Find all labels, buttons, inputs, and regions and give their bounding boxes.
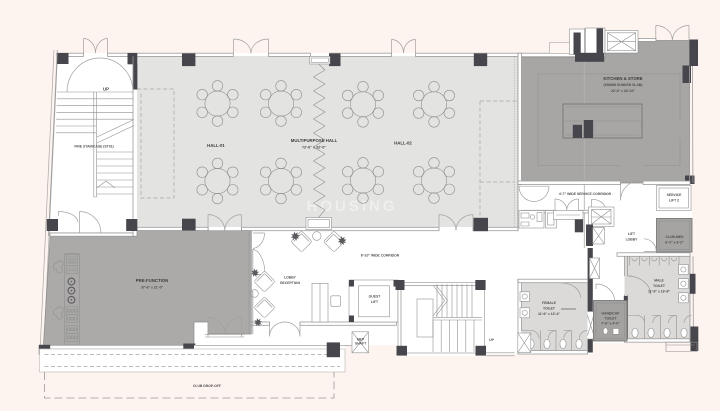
svg-text:22'-4" x 22'-10": 22'-4" x 22'-10" xyxy=(611,89,635,93)
svg-text:GUEST: GUEST xyxy=(369,295,382,299)
svg-text:LOBBY: LOBBY xyxy=(284,276,297,280)
svg-text:TOILET: TOILET xyxy=(543,307,556,311)
svg-text:RECEPTION: RECEPTION xyxy=(280,281,300,285)
svg-text:SHAFT: SHAFT xyxy=(355,342,367,346)
svg-text:HOUSING: HOUSING xyxy=(306,198,397,215)
svg-text:FIRE STAIRCASE (ST01): FIRE STAIRCASE (ST01) xyxy=(74,145,113,149)
svg-text:KITCHEN & STORE: KITCHEN & STORE xyxy=(603,76,642,81)
svg-text:4'-7" WIDE SERVICE CORRIDOR: 4'-7" WIDE SERVICE CORRIDOR xyxy=(559,192,612,196)
svg-text:(150MM SUNKEN SLAB): (150MM SUNKEN SLAB) xyxy=(604,83,643,87)
svg-text:7'-6" x 4'-0": 7'-6" x 4'-0" xyxy=(601,322,620,326)
svg-text:11'-9" x 15'-8": 11'-9" x 15'-8" xyxy=(648,290,670,294)
svg-text:FEMALE: FEMALE xyxy=(542,301,557,305)
svg-text:MULTIPURPOSE HALL: MULTIPURPOSE HALL xyxy=(291,138,338,143)
svg-text:LOBBY: LOBBY xyxy=(626,238,639,242)
svg-text:CLUB DROP-OFF: CLUB DROP-OFF xyxy=(193,384,221,388)
svg-text:UP: UP xyxy=(103,87,109,92)
svg-text:PRE-FUNCTION: PRE-FUNCTION xyxy=(136,278,168,283)
svg-text:TOILET: TOILET xyxy=(653,284,666,288)
svg-text:LIFT: LIFT xyxy=(371,300,379,304)
svg-text:MALE: MALE xyxy=(654,279,664,283)
svg-text:LIFT: LIFT xyxy=(628,232,636,236)
svg-text:6'-3" x 6'-2": 6'-3" x 6'-2" xyxy=(665,241,684,245)
svg-text:HALL-02: HALL-02 xyxy=(394,141,412,146)
svg-text:SERVICE: SERVICE xyxy=(667,193,683,197)
svg-text:LIFT 2: LIFT 2 xyxy=(669,199,679,203)
svg-text:UP: UP xyxy=(489,338,494,342)
svg-text:HALL-01: HALL-01 xyxy=(207,143,225,148)
svg-text:37'-6" x 21'-0": 37'-6" x 21'-0" xyxy=(141,286,164,290)
svg-text:8'-10" WIDE CORRIDOR: 8'-10" WIDE CORRIDOR xyxy=(361,254,400,258)
svg-text:11'-9" x 12'-4": 11'-9" x 12'-4" xyxy=(538,312,560,316)
svg-text:HANDICAP: HANDICAP xyxy=(602,312,621,316)
svg-text:72'-6" x 32'-0": 72'-6" x 32'-0" xyxy=(302,146,326,150)
svg-text:TOILET: TOILET xyxy=(605,317,618,321)
svg-text:CLUB-MED: CLUB-MED xyxy=(665,235,684,239)
